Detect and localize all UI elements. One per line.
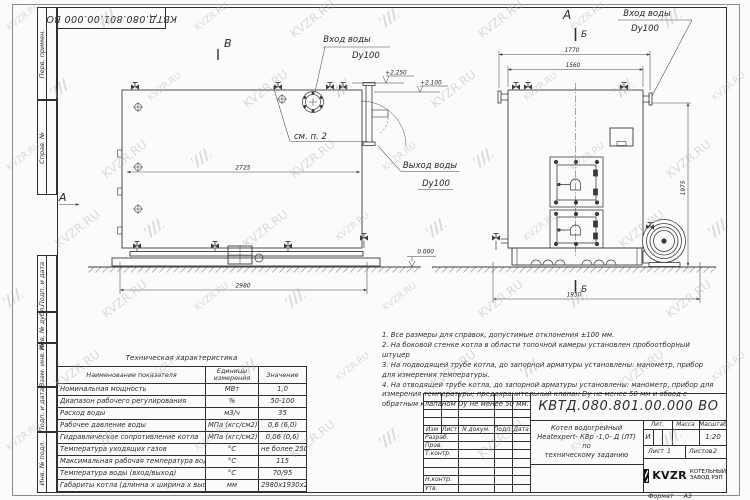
param-value: 2980х1930х2250 bbox=[259, 480, 307, 492]
sheets-value: 2 bbox=[710, 445, 720, 458]
table-row: Температура воды (вход/выход)°С70/95 bbox=[58, 468, 307, 480]
param-name: Рабочее давление воды bbox=[58, 420, 206, 432]
param-name: Температура уходящих газов bbox=[58, 444, 206, 456]
col-izm: Изм bbox=[423, 425, 441, 433]
sidebar-box-vzam-inv: Взам. инв. № bbox=[37, 343, 57, 387]
scale-header: Масштаб bbox=[699, 420, 727, 429]
param-name: Температура воды (вход/выход) bbox=[58, 468, 206, 480]
format-value: А3 bbox=[684, 493, 692, 500]
col-list: Лист bbox=[441, 425, 458, 433]
param-unit: м3/ч bbox=[206, 408, 259, 420]
sidebar-label: Перв. примен. bbox=[38, 29, 46, 78]
doc-title-line: Котел водогрейный bbox=[551, 424, 622, 433]
param-value: 50-100 bbox=[259, 396, 307, 408]
lit-value: И bbox=[643, 429, 653, 445]
param-unit: °С bbox=[206, 456, 259, 468]
table-row: Температура уходящих газов°Сне более 250 bbox=[58, 444, 307, 456]
param-unit: МПа (кгс/см2) bbox=[206, 420, 259, 432]
col-header: Единицы измерения bbox=[206, 367, 259, 384]
table-row: Номинальная мощностьМВт1,0 bbox=[58, 384, 307, 396]
spec-table-title: Техническая характеристика bbox=[57, 353, 306, 362]
row-nkontr: Н.контр. bbox=[423, 475, 458, 484]
kvzr-logo-icon bbox=[644, 469, 649, 483]
note-item: 1. Все размеры для справок, допустимые о… bbox=[382, 331, 718, 340]
col-header: Значение bbox=[259, 367, 307, 384]
sheets-label: Листов bbox=[687, 445, 712, 458]
param-value: 0,6 (6,0) bbox=[259, 420, 307, 432]
sidebar-box-perv-primen: Перв. примен. bbox=[37, 7, 57, 100]
table-row: Максимальная рабочая температура воды°С1… bbox=[58, 456, 307, 468]
format-label: Формат bbox=[648, 493, 674, 500]
param-unit: °С bbox=[206, 468, 259, 480]
sidebar-box-inv-podl: Инв. № подл. bbox=[37, 432, 57, 493]
param-name: Габариты котла (длинна х ширина х высота… bbox=[58, 480, 206, 492]
table-row: Диапазон рабочего регулирования%50-100 bbox=[58, 396, 307, 408]
param-name: Диапазон рабочего регулирования bbox=[58, 396, 206, 408]
param-unit: мм bbox=[206, 480, 259, 492]
row-razrab: Разраб. bbox=[423, 433, 458, 441]
company-name: КОТЕЛЬНЫЙ ЗАВОД РЭП bbox=[690, 470, 726, 482]
param-value: 1,0 bbox=[259, 384, 307, 396]
kvzr-wordmark: KVZR bbox=[652, 469, 687, 482]
row-tkontr: Т.контр. bbox=[423, 449, 458, 458]
sheet-label: Лист bbox=[646, 445, 666, 458]
table-row: Габариты котла (длинна х ширина х высота… bbox=[58, 480, 307, 492]
doc-title-line: Heatexpert- КВр -1,0- Д (ЛТ) по bbox=[532, 433, 641, 451]
spec-table: Наименование показателя Единицы измерени… bbox=[57, 366, 307, 492]
row-prov: Пров. bbox=[423, 441, 458, 449]
sidebar-label: Подп. и дата bbox=[38, 261, 46, 305]
param-name: Номинальная мощность bbox=[58, 384, 206, 396]
sidebar-box-sprav-n: Справ. № bbox=[37, 100, 57, 195]
table-row: Рабочее давление водыМПа (кгс/см2)0,6 (6… bbox=[58, 420, 307, 432]
top-doc-number: КВТД.080.801.00.000 ВО bbox=[46, 13, 177, 24]
doc-title: Котел водогрейный Heatexpert- КВр -1,0- … bbox=[532, 421, 641, 463]
col-ndokum: N докум. bbox=[458, 425, 494, 433]
param-value: 115 bbox=[259, 456, 307, 468]
sidebar-box-podp-data-2: Подп. и дата bbox=[37, 387, 57, 432]
param-unit: МВт bbox=[206, 384, 259, 396]
col-podp: Подп. bbox=[494, 425, 512, 433]
param-value: не более 250 bbox=[259, 444, 307, 456]
table-row: Расход водым3/ч35 bbox=[58, 408, 307, 420]
row-utv: Утв. bbox=[423, 484, 458, 493]
note-item: 3. На подводящей трубе котла, до запорно… bbox=[382, 361, 718, 380]
drawing-sheet: КВТД.080.801.00.000 ВО Перв. примен. Спр… bbox=[0, 0, 750, 500]
param-unit: МПа (кгс/см2) bbox=[206, 432, 259, 444]
param-name: Гидравлическое сопротивление котла bbox=[58, 432, 206, 444]
table-row: Гидравлическое сопротивление котлаМПа (к… bbox=[58, 432, 307, 444]
doc-number: КВТД.080.801.00.000 ВО bbox=[530, 393, 727, 420]
param-value: 35 bbox=[259, 408, 307, 420]
format-note: Формат А3 bbox=[648, 492, 728, 500]
top-doc-number-box: КВТД.080.801.00.000 ВО bbox=[57, 7, 166, 29]
param-unit: °С bbox=[206, 444, 259, 456]
sidebar-label: Справ. № bbox=[38, 132, 46, 164]
mass-header: Масса bbox=[672, 420, 699, 429]
doc-title-line: техническому заданию bbox=[545, 451, 629, 460]
table-header-row: Наименование показателя Единицы измерени… bbox=[58, 367, 307, 384]
company-cell: KVZR КОТЕЛЬНЫЙ ЗАВОД РЭП bbox=[644, 459, 726, 492]
param-unit: % bbox=[206, 396, 259, 408]
param-value: 0,06 (0,6) bbox=[259, 432, 307, 444]
note-item: 2. На боковой стенке котла в области топ… bbox=[382, 341, 718, 360]
param-value: 70/95 bbox=[259, 468, 307, 480]
col-header: Наименование показателя bbox=[58, 367, 206, 384]
sidebar-label: Взам. инв. № bbox=[38, 343, 46, 387]
param-name: Расход воды bbox=[58, 408, 206, 420]
sidebar-label: Инв. № подл. bbox=[38, 440, 46, 485]
lit-header: Лит. bbox=[643, 420, 672, 429]
param-name: Максимальная рабочая температура воды bbox=[58, 456, 206, 468]
sidebar-box-inv-dubl: Инв. № дубл. bbox=[37, 312, 57, 343]
sidebar-box-podp-data-1: Подп. и дата bbox=[37, 255, 57, 312]
sidebar-label: Подп. и дата bbox=[38, 387, 46, 431]
scale-value: 1:20 bbox=[699, 429, 727, 445]
col-data: Дата bbox=[512, 425, 530, 433]
sheet-value: 1 bbox=[664, 445, 674, 458]
